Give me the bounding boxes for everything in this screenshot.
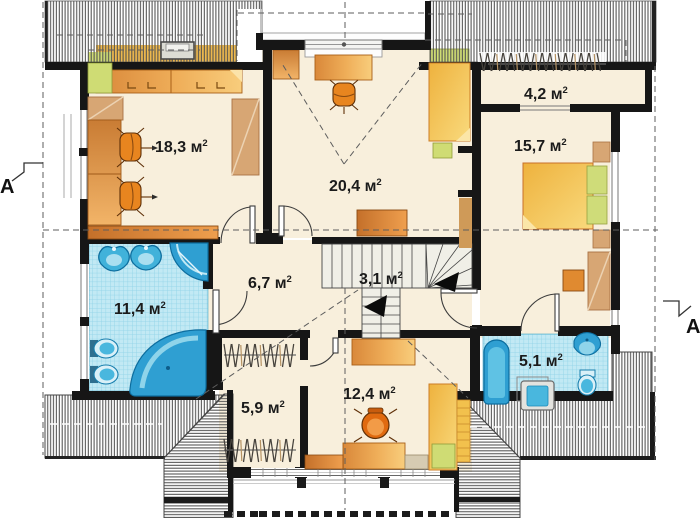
svg-text:A: A: [686, 316, 700, 338]
svg-text:18,3 м2: 18,3 м2: [155, 138, 208, 156]
svg-text:4,2 м2: 4,2 м2: [524, 85, 568, 103]
svg-text:5,1 м2: 5,1 м2: [519, 352, 563, 370]
svg-text:15,7 м2: 15,7 м2: [514, 137, 567, 155]
svg-text:6,7 м2: 6,7 м2: [248, 274, 292, 292]
svg-text:20,4 м2: 20,4 м2: [329, 177, 382, 195]
svg-text:11,4 м2: 11,4 м2: [114, 300, 166, 318]
svg-text:A: A: [0, 176, 14, 198]
svg-text:3,1 м2: 3,1 м2: [359, 270, 403, 288]
svg-text:5,9 м2: 5,9 м2: [241, 399, 285, 417]
svg-text:12,4 м2: 12,4 м2: [343, 385, 396, 403]
